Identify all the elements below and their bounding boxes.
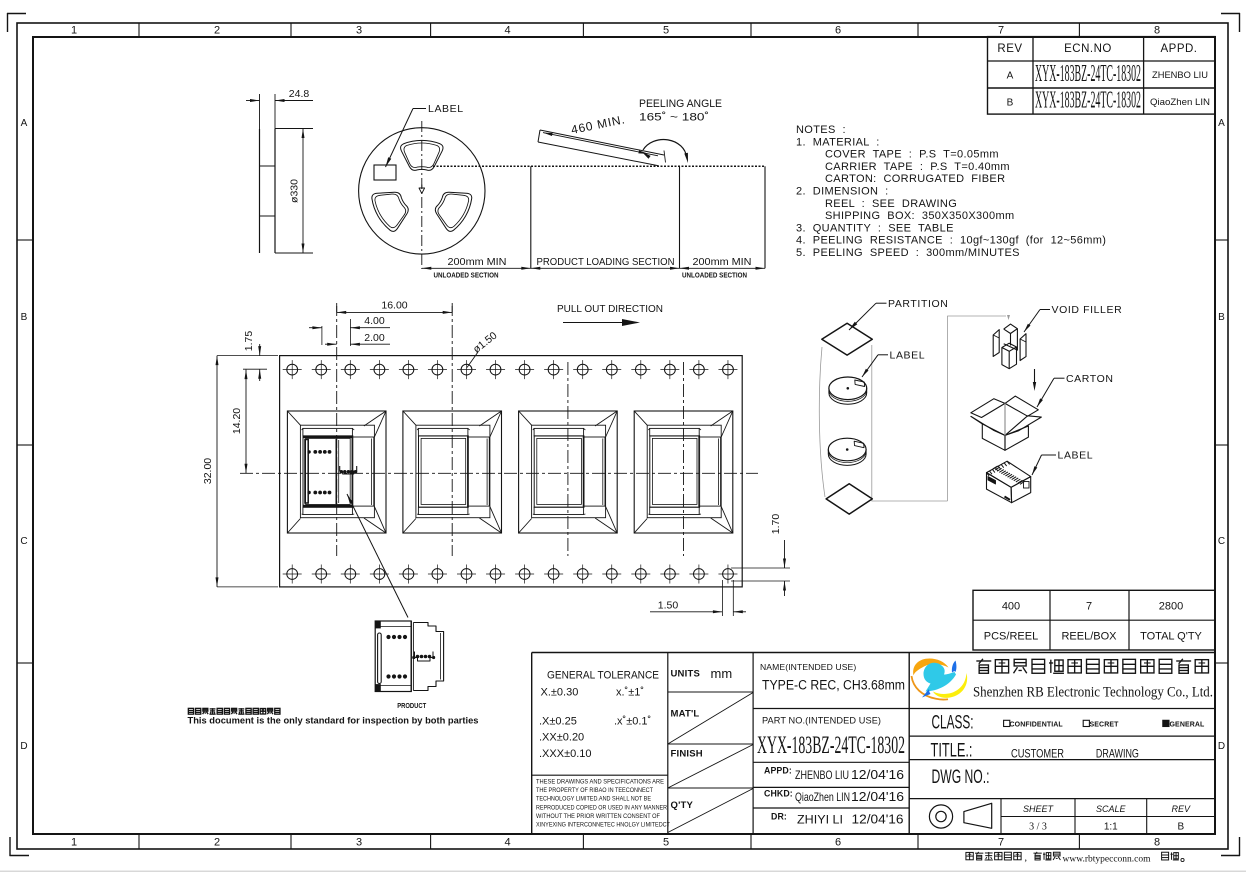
- svg-text:Q'TY: Q'TY: [671, 800, 694, 811]
- svg-text:400: 400: [1002, 601, 1020, 613]
- svg-text:LABEL: LABEL: [1058, 450, 1094, 462]
- svg-text:PARTITION: PARTITION: [888, 298, 948, 310]
- svg-text:3. QUANTITY : SEE TABLE: 3. QUANTITY : SEE TABLE: [796, 222, 954, 234]
- svg-text:PULL OUT DIRECTION: PULL OUT DIRECTION: [557, 303, 663, 315]
- svg-text:CARTON: CARTON: [1066, 373, 1114, 385]
- svg-text:14.20: 14.20: [231, 408, 243, 434]
- svg-text:GENERAL TOLERANCE: GENERAL TOLERANCE: [547, 670, 659, 682]
- svg-text:1.70: 1.70: [770, 514, 782, 535]
- svg-text:TITLE.:: TITLE.:: [931, 741, 973, 762]
- svg-text:1.75: 1.75: [243, 331, 255, 352]
- svg-text:CUSTOMER: CUSTOMER: [1011, 747, 1064, 761]
- svg-text:3: 3: [356, 25, 362, 37]
- svg-text:REEL : SEE DRAWING: REEL : SEE DRAWING: [825, 198, 957, 210]
- svg-text:200mm MIN: 200mm MIN: [448, 256, 507, 268]
- svg-text:This document is the only stan: This document is the only standard for i…: [188, 716, 479, 726]
- svg-text:165˚ ~ 180˚: 165˚ ~ 180˚: [639, 112, 709, 124]
- svg-text:12/04'16: 12/04'16: [852, 813, 904, 827]
- svg-text:CARRIER TAPE : P.S T=0.40mm: CARRIER TAPE : P.S T=0.40mm: [825, 161, 1010, 173]
- svg-text:SHEET: SHEET: [1023, 804, 1055, 814]
- svg-text:24.8: 24.8: [289, 88, 310, 100]
- svg-text:CLASS:: CLASS:: [932, 713, 974, 734]
- svg-text:QiaoZhen LIN: QiaoZhen LIN: [1150, 97, 1210, 108]
- svg-text:.X±0.25: .X±0.25: [539, 716, 577, 728]
- svg-text:QiaoZhen LIN: QiaoZhen LIN: [795, 790, 850, 804]
- svg-text:200mm MIN: 200mm MIN: [693, 256, 752, 268]
- svg-text:2: 2: [214, 837, 220, 849]
- svg-text:2. DIMENSION :: 2. DIMENSION :: [796, 186, 889, 198]
- svg-text:5: 5: [663, 25, 669, 37]
- svg-text:DR:: DR:: [771, 812, 787, 822]
- svg-text:,: ,: [1025, 853, 1028, 864]
- svg-text:2800: 2800: [1159, 601, 1183, 613]
- svg-text:C: C: [20, 536, 27, 547]
- svg-text:1: 1: [71, 25, 77, 37]
- svg-text:3 / 3: 3 / 3: [1029, 822, 1047, 833]
- svg-text:PCS/REEL: PCS/REEL: [984, 631, 1038, 643]
- svg-text:PART NO.(INTENDED USE): PART NO.(INTENDED USE): [762, 716, 881, 726]
- svg-text:NOTES :: NOTES :: [796, 124, 846, 136]
- svg-text:2.00: 2.00: [364, 332, 385, 344]
- svg-text:REV: REV: [997, 43, 1022, 55]
- svg-text:PEELING ANGLE: PEELING ANGLE: [639, 98, 722, 110]
- svg-text:B: B: [1218, 312, 1225, 323]
- svg-text:DRAWING: DRAWING: [1096, 747, 1139, 761]
- svg-text:XYX-183BZ-24TC-18302: XYX-183BZ-24TC-18302: [1035, 88, 1141, 114]
- svg-text:NAME(INTENDED USE): NAME(INTENDED USE): [760, 662, 856, 672]
- svg-text:CHKD:: CHKD:: [764, 789, 793, 799]
- svg-text:7: 7: [998, 25, 1004, 37]
- svg-text:ZHENBO LIU: ZHENBO LIU: [795, 768, 849, 782]
- svg-text:8: 8: [1154, 837, 1160, 849]
- svg-text:ZHIYI LI: ZHIYI LI: [797, 813, 843, 827]
- svg-text:TOTAL Q'TY: TOTAL Q'TY: [1140, 631, 1202, 643]
- svg-text:THE PROPERTY OF RIBAO IN TEECO: THE PROPERTY OF RIBAO IN TEECONNECT: [536, 787, 653, 794]
- svg-text:1: 1: [71, 837, 77, 849]
- svg-text:4.00: 4.00: [364, 315, 385, 327]
- svg-text:1:1: 1:1: [1104, 822, 1118, 833]
- svg-text:7: 7: [998, 837, 1004, 849]
- svg-text:4: 4: [504, 837, 510, 849]
- svg-text:REEL/BOX: REEL/BOX: [1061, 631, 1117, 643]
- svg-text:SECRET: SECRET: [1090, 721, 1120, 728]
- svg-text:www.rbtypecconn.com: www.rbtypecconn.com: [1063, 854, 1152, 864]
- svg-text:A: A: [1007, 71, 1014, 82]
- svg-text:LABEL: LABEL: [428, 103, 464, 115]
- svg-text:LABEL: LABEL: [890, 350, 926, 362]
- svg-text:mm: mm: [711, 666, 733, 681]
- svg-text:REPRODUCED COPIED OR USED IN A: REPRODUCED COPIED OR USED IN ANY MANNER: [536, 804, 667, 811]
- svg-text:12/04'16: 12/04'16: [851, 768, 904, 782]
- svg-text:D: D: [1218, 741, 1225, 752]
- svg-text:PRODUCT LOADING SECTION: PRODUCT LOADING SECTION: [537, 256, 675, 268]
- svg-text:B: B: [1007, 98, 1014, 109]
- svg-text:MAT'L: MAT'L: [671, 709, 700, 720]
- svg-text:GENERAL: GENERAL: [1170, 721, 1206, 728]
- svg-text:APPD.: APPD.: [1160, 43, 1197, 55]
- svg-text:XINYEXING INTERCONNETEC HNOLGY: XINYEXING INTERCONNETEC HNOLGY LIMITEDCT: [536, 822, 670, 829]
- svg-text:x.˚±1˚: x.˚±1˚: [616, 687, 644, 699]
- svg-text:1.50: 1.50: [658, 600, 679, 612]
- svg-text:D: D: [20, 741, 27, 752]
- svg-text:REV: REV: [1172, 804, 1192, 814]
- svg-text:DWG NO.:: DWG NO.:: [932, 767, 990, 788]
- svg-text:APPD:: APPD:: [764, 766, 792, 776]
- svg-text:CONFIDENTIAL: CONFIDENTIAL: [1010, 721, 1064, 728]
- svg-text:6: 6: [835, 25, 841, 37]
- svg-text:8: 8: [1154, 25, 1160, 37]
- svg-text:A: A: [21, 118, 28, 129]
- svg-text:SCALE: SCALE: [1096, 804, 1127, 814]
- svg-text:5: 5: [663, 837, 669, 849]
- svg-text:XYX-183BZ-24TC-18302: XYX-183BZ-24TC-18302: [1035, 61, 1141, 87]
- svg-text:ECN.NO: ECN.NO: [1064, 43, 1112, 55]
- svg-text:TYPE-C REC, CH3.68mm: TYPE-C REC, CH3.68mm: [762, 678, 905, 693]
- svg-text:5. PEELING SPEED : 300mm/MINUT: 5. PEELING SPEED : 300mm/MINUTES: [796, 247, 1020, 259]
- svg-text:ø330: ø330: [289, 179, 301, 203]
- svg-text:B: B: [21, 312, 28, 323]
- svg-text:CARTON: CORRUGATED FIBER: CARTON: CORRUGATED FIBER: [825, 173, 1005, 185]
- svg-text:4. PEELING RESISTANCE : 10gf~1: 4. PEELING RESISTANCE : 10gf~130gf (for …: [796, 235, 1106, 247]
- svg-text:PRODUCT: PRODUCT: [397, 701, 426, 710]
- svg-text:TECHNOLOGY LIMITED.AND SHALL N: TECHNOLOGY LIMITED.AND SHALL NOT BE: [536, 796, 651, 803]
- svg-text:12/04'16: 12/04'16: [851, 790, 904, 804]
- svg-text:XYX-183BZ-24TC-18302: XYX-183BZ-24TC-18302: [757, 732, 905, 759]
- svg-text:.XX±0.20: .XX±0.20: [539, 732, 584, 744]
- svg-text:COVER TAPE : P.S T=0.05mm: COVER TAPE : P.S T=0.05mm: [825, 149, 999, 161]
- svg-text:WITHOUT THE PRIOR WRITTEN CON: WITHOUT THE PRIOR WRITTEN CONSENT OF: [536, 813, 660, 820]
- svg-text:.XXX±0.10: .XXX±0.10: [539, 748, 592, 760]
- svg-text:UNITS: UNITS: [671, 669, 701, 680]
- svg-text:ZHENBO LIU: ZHENBO LIU: [1152, 70, 1208, 80]
- svg-text:4: 4: [504, 25, 510, 37]
- svg-text:X.±0.30: X.±0.30: [541, 687, 579, 699]
- svg-text:A: A: [1218, 118, 1225, 129]
- svg-text:1. MATERIAL :: 1. MATERIAL :: [796, 136, 880, 148]
- svg-text:3: 3: [356, 837, 362, 849]
- svg-text:Shenzhen RB Electronic Technol: Shenzhen RB Electronic Technology Co., L…: [973, 685, 1213, 701]
- svg-text:B: B: [1177, 822, 1184, 833]
- svg-text:32.00: 32.00: [202, 458, 214, 484]
- svg-text:6: 6: [835, 837, 841, 849]
- svg-text:VOID FILLER: VOID FILLER: [1052, 304, 1123, 316]
- svg-text:SHIPPING BOX: 350X350X300mm: SHIPPING BOX: 350X350X300mm: [825, 210, 1014, 222]
- svg-text:16.00: 16.00: [381, 300, 407, 312]
- svg-text:THESE DRAWINGS AND SPECIFICATI: THESE DRAWINGS AND SPECIFICATIONS ARE: [536, 779, 664, 786]
- svg-text:FINISH: FINISH: [671, 749, 703, 760]
- svg-text:7: 7: [1086, 601, 1092, 613]
- svg-text:C: C: [1218, 536, 1225, 547]
- svg-text:2: 2: [214, 25, 220, 37]
- svg-text:.x˚±0.1˚: .x˚±0.1˚: [614, 716, 651, 728]
- svg-text:UNLOADED SECTION: UNLOADED SECTION: [682, 271, 747, 280]
- svg-text:UNLOADED SECTION: UNLOADED SECTION: [434, 271, 499, 280]
